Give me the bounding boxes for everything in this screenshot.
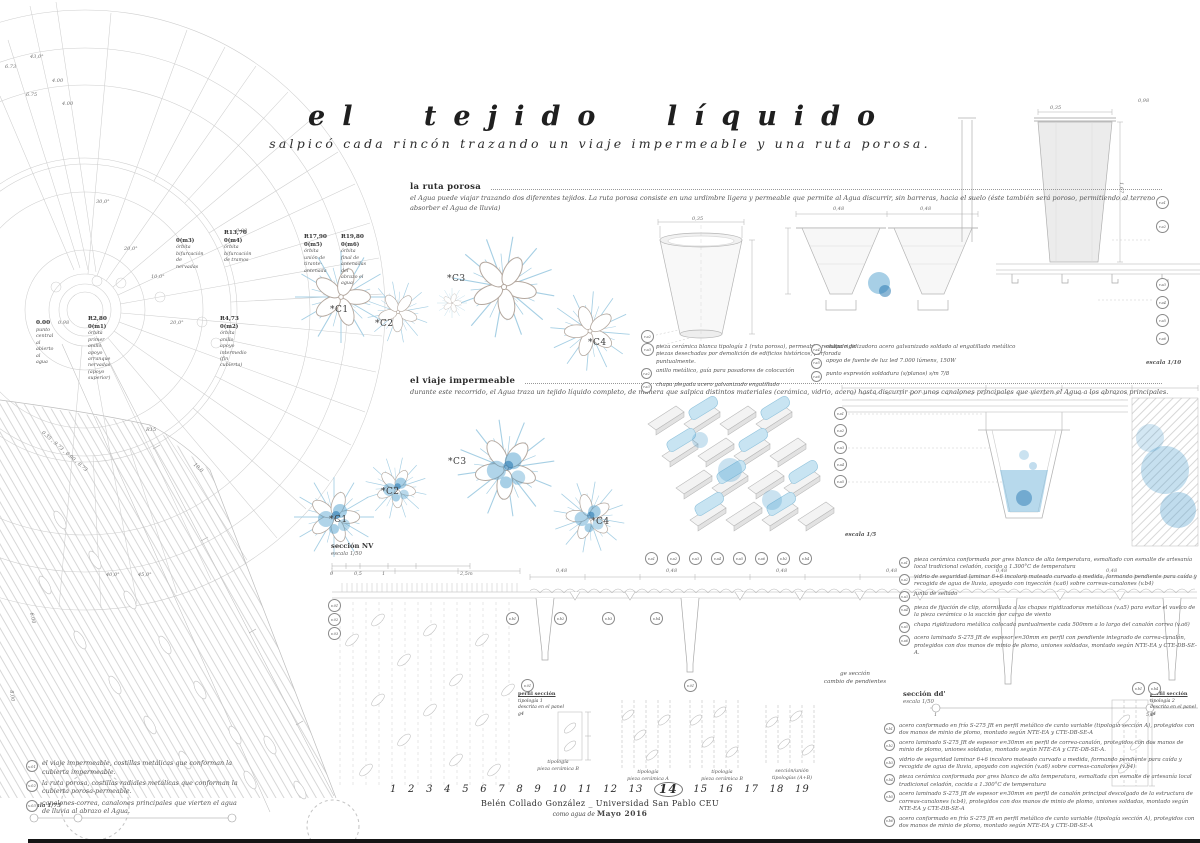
typology-line2: pieza cerámica B — [537, 767, 579, 772]
panel-number: 6 — [480, 784, 487, 795]
page-subtitle: salpicó cada rincón trazando un viaje im… — [250, 136, 950, 151]
legend-item-text: pieza de fijación de clip, atornillada a… — [914, 605, 1199, 620]
presentation-sheet: el tejido líquido salpicó cada rincón tr… — [0, 0, 1200, 843]
dimension-label: 9.00 — [236, 228, 247, 234]
plan-orbit-label: R13,70 0(m4) órbita bifurcación de tramo… — [224, 230, 252, 265]
section-nv-label: sección NV escala 1/50 — [331, 542, 373, 557]
dimension-label: 0,48 — [920, 206, 931, 212]
legend-item: v.a4 pieza de fijación de clip, atornill… — [899, 605, 1199, 620]
panel-number: 9 — [534, 784, 541, 795]
panel-number: 4 — [444, 784, 451, 795]
panel-number: 11 — [578, 784, 593, 795]
panel-number: 12 — [603, 784, 618, 795]
typology-line2: pieza cerámica B — [701, 777, 743, 782]
gutter-vessels-detail — [785, 211, 978, 310]
gutter-funnel-section — [842, 385, 1198, 546]
legend-item-text: acero conformado en frío S-275 JR en per… — [899, 816, 1196, 831]
legend-item: r.a5 apoyo de fuente de luz led 7.000 lú… — [811, 358, 1061, 369]
dimension-label: 0,35 — [692, 216, 703, 222]
legend-item-text: vidrio de seguridad laminar 6+6 incoloro… — [899, 757, 1196, 772]
section-dd-title: sección dd' — [903, 690, 945, 698]
legend-item: v.01 el viaje impermeable, costillas met… — [26, 759, 241, 776]
legend-vb: v.b1 acero conformado en frío S-275 JR e… — [884, 723, 1196, 833]
perfil2-line3: descrita en el panel g4 — [1150, 705, 1196, 719]
orbit-code: 0(m2) — [220, 324, 247, 331]
legend-code-circle: v.a1 — [899, 557, 910, 568]
orbit-radius: R2,80 — [88, 316, 110, 324]
code-marker-circle: v.03 — [328, 627, 341, 640]
panel-number: 10 — [552, 784, 567, 795]
legend-item: v.b4 pieza cerámica conformada por gres … — [884, 774, 1196, 789]
orbit-desc-1: órbita primer anillo apoyo — [88, 331, 110, 357]
legend-item-text: acero conformado en frío S-275 JR en per… — [899, 723, 1196, 738]
panel-number: 5 — [462, 784, 469, 795]
legend-item-text: junta de sellado — [914, 591, 957, 598]
section-dd-label: sección dd' escala 1/50 — [903, 690, 945, 705]
legend-code-circle: v.a5 — [899, 622, 910, 633]
panel-number: 15 — [693, 784, 708, 795]
dimension-label: 45,0° — [138, 572, 152, 578]
scale-note-1-10: escala 1/10 — [1146, 360, 1181, 366]
code-marker-circle: v.a4 — [834, 458, 847, 471]
code-marker-circle: v.a3 — [834, 441, 847, 454]
panel-number: 16 — [719, 784, 734, 795]
dimension-label: 0 — [330, 571, 333, 577]
panel-number: 19 — [795, 784, 810, 795]
dimension-label: 6.73 — [5, 64, 16, 70]
code-marker-circle: v.b4 — [1148, 682, 1161, 695]
legend-item: v.b1 acero conformado en frío S-275 JR e… — [884, 723, 1196, 738]
legend-code-circle: v.01 — [26, 760, 38, 772]
legend-item: v.a3 junta de sellado — [899, 591, 1199, 602]
legend-code-circle: r.a4 — [811, 344, 822, 355]
title-block: el tejido líquido salpicó cada rincón tr… — [250, 101, 950, 151]
flower-piece-label: *C4 — [588, 338, 607, 348]
legend-code-circle: v.b5 — [884, 791, 895, 802]
plan-orbit-label: 0.00 punto central al abierto al agua — [36, 320, 53, 367]
code-marker-circle: v.b2 — [777, 552, 790, 565]
legend-item-text: la ruta porosa, costillas radiales metál… — [42, 779, 241, 796]
orbit-radius: R17,90 — [304, 234, 327, 242]
legend-code-circle: v.b6 — [884, 816, 895, 827]
orbit-radius: R4,73 — [220, 316, 247, 324]
code-marker-circle: r.a6 — [1156, 332, 1169, 345]
legend-item-text: vidrio de seguridad laminar 6+6 incoloro… — [914, 574, 1199, 589]
panel-number: 2 — [408, 784, 415, 795]
perfil1-line3: descrita en el panel g4 — [518, 705, 570, 719]
typology-line1: tipología — [711, 770, 732, 775]
orbit-desc-2: abierto al agua — [36, 347, 53, 366]
typology-line1: tipología — [547, 760, 568, 765]
legend-item-text: chapa rigidizadora metálica colocada pun… — [914, 622, 1190, 629]
legend-code-circle: v.a4 — [899, 605, 910, 616]
orbit-radius: 0.00 — [36, 320, 53, 328]
dimension-label: 0,48 — [996, 568, 1007, 574]
section-heading-text: el viaje impermeable — [410, 376, 515, 386]
legend-code-circle: r.a2 — [641, 368, 652, 379]
legend-va: v.a1 pieza cerámica conformada por gres … — [899, 557, 1199, 660]
legend-item-text: el viaje impermeable, costillas metálica… — [42, 759, 241, 776]
code-marker-circle: r.a2 — [641, 330, 654, 343]
code-marker-circle: v.b1 — [506, 612, 519, 625]
legend-code-circle: r.a5 — [811, 358, 822, 369]
plan-orbit-label: R2,80 0(m1) órbita primer anillo apoyo a… — [88, 316, 110, 383]
ge-line2: cambio de pendientes — [824, 679, 886, 685]
panel-number: 7 — [498, 784, 505, 795]
code-marker-circle: v.a6 — [755, 552, 768, 565]
orbit-desc-2: de tramos — [224, 258, 252, 264]
legend-item-text: acero laminado S-275 JR de espesor e≈30m… — [899, 791, 1196, 813]
dimension-label: 1,67 — [1118, 182, 1124, 193]
code-marker-circle: v.01 — [328, 599, 341, 612]
legend-item-text: chapa rigidizadora acero galvanizado sol… — [826, 344, 1015, 351]
code-marker-circle: v.b4 — [799, 552, 812, 565]
flower-piece-label: *C4 — [591, 517, 610, 527]
legend-code-circle: v.a3 — [899, 591, 910, 602]
dimension-label: 6.75 — [26, 92, 37, 98]
code-marker-circle: v.a2 — [667, 552, 680, 565]
section-nv-title: sección NV — [331, 542, 373, 550]
orbit-desc-2: intermedio (fin cubierta) — [220, 351, 247, 370]
legend-code-circle: v.b3 — [884, 757, 895, 768]
legend-item-text: acero laminado S-275 JR de espesor e≈30m… — [914, 635, 1199, 657]
panel-number: 3 — [426, 784, 433, 795]
dimension-label: 4.00 — [52, 78, 63, 84]
section-heading-ruta-porosa: la ruta porosa — [410, 182, 1162, 192]
tile-array-axonometric — [648, 396, 834, 531]
dimension-label: R15 — [146, 427, 156, 433]
panel-number: 17 — [744, 784, 759, 795]
legend-item-text: chapa plegada acero galvanizado engatill… — [656, 382, 779, 389]
flower-piece-label: *C2 — [375, 319, 394, 329]
legend-code-circle: v.03 — [26, 800, 38, 812]
page-title: el tejido líquido — [250, 101, 950, 132]
code-marker-circle: v.b1 — [1132, 682, 1145, 695]
legend-item: v.03 canalones-correa, canalones princip… — [26, 799, 241, 816]
legend-item-text: pieza cerámica conformada por gres blanc… — [899, 774, 1196, 789]
dimension-label: 0,35 — [1050, 105, 1061, 111]
orbit-radius: R19,80 — [341, 234, 366, 242]
orbit-code: 0(m5) — [304, 242, 327, 249]
legend-item: r.a4 chapa rigidizadora acero galvanizad… — [811, 344, 1061, 355]
dimension-label: 2,5m — [460, 571, 473, 577]
typology-line2: tipologías (A+B) — [772, 776, 812, 781]
legend-ruta-right: r.a4 chapa rigidizadora acero galvanizad… — [811, 344, 1061, 385]
legend-code-circle: v.a2 — [899, 574, 910, 585]
legend-code-circle: r.a3 — [641, 382, 652, 393]
code-marker-circle: v.a3 — [689, 552, 702, 565]
dimension-label: 5,0 — [1146, 712, 1154, 718]
legend-item: v.a6 acero laminado S-275 JR de espesor … — [899, 635, 1199, 657]
code-marker-circle: r.a3 — [641, 343, 654, 356]
legend-item: v.a5 chapa rigidizadora metálica colocad… — [899, 622, 1199, 633]
dimension-label: 0,48 — [833, 206, 844, 212]
dimension-label: 43,0° — [30, 54, 44, 60]
orbit-desc-1: órbita bifurcación — [224, 245, 252, 258]
orbit-code: 0(m1) — [88, 324, 110, 331]
code-marker-circle: r.a3 — [1156, 278, 1169, 291]
panel-number: 1 — [390, 784, 397, 795]
dimension-label: 30,0° — [96, 199, 110, 205]
perfil-label-1: perfil sección tipología 1 descrita en e… — [518, 691, 570, 719]
code-marker-circle: r.a1 — [1156, 196, 1169, 209]
perfil-label-2: perfil sección tipología 2 descrita en e… — [1150, 691, 1196, 719]
plan-orbit-label: R19,80 0(m6) órbita final de antenadas d… — [341, 234, 366, 288]
code-marker-circle: v.a5 — [834, 475, 847, 488]
orbit-desc-1: órbita bifurcación — [176, 245, 204, 258]
dimension-label: 0,5 — [354, 571, 362, 577]
dimension-label: 0,48 — [1106, 568, 1117, 574]
code-marker-circle: v.01 — [521, 679, 534, 692]
code-marker-circle: v.a2 — [834, 424, 847, 437]
legend-code-circle: v.a6 — [899, 635, 910, 646]
legend-code-circle: v.02 — [26, 780, 38, 792]
plan-orbit-label: 0(m3) órbita bifurcación de nervadas — [176, 238, 204, 271]
code-marker-circle: r.a5 — [1156, 314, 1169, 327]
orbit-desc-1: órbita anillo apoyo — [220, 331, 247, 350]
legend-item: v.02 la ruta porosa, costillas radiales … — [26, 779, 241, 796]
code-marker-circle: r.a4 — [1156, 296, 1169, 309]
typology-label: sección/unión tipologías (A+B) — [762, 769, 822, 782]
dimension-label: 0,48 — [666, 568, 677, 574]
dimension-label: 20,0° — [124, 246, 138, 252]
panel-number: 13 — [629, 784, 644, 795]
flower-piece-label: *C2 — [381, 487, 400, 497]
code-marker-circle: v.a4 — [711, 552, 724, 565]
panel-number: 14 — [654, 782, 683, 797]
panel-number-row: 1 2 3 4 5 6 7 8 9 10 11 12 13 14 15 — [390, 782, 810, 797]
panel-number: 8 — [516, 784, 523, 795]
typology-line1: sección/unión — [775, 769, 809, 774]
code-marker-circle: v.b2 — [554, 612, 567, 625]
perfil1-line1: perfil sección — [518, 691, 570, 699]
dimension-label: 8.00 — [8, 690, 15, 702]
legend-code-circle: v.b4 — [884, 774, 895, 785]
dimension-label: 1 — [382, 571, 385, 577]
orbit-desc-2: arranque nervadas (apoyo superior) — [88, 357, 110, 383]
typology-line2: pieza cerámica A — [627, 777, 669, 782]
plan-orbit-label: R4,73 0(m2) órbita anillo apoyo intermed… — [220, 316, 247, 370]
dimension-label: 0,98 — [1138, 98, 1149, 104]
ge-section-label: ge sección cambio de pendientes — [810, 670, 900, 687]
date-value: Mayo 2016 — [597, 809, 648, 818]
legend-item-text: anillo metálico, guía para pasadores de … — [656, 368, 794, 375]
legend-item-text: pieza cerámica conformada por gres blanc… — [914, 557, 1199, 572]
dotted-leader — [491, 185, 1162, 190]
code-marker-circle: v.02 — [328, 613, 341, 626]
legend-item: v.a1 pieza cerámica conformada por gres … — [899, 557, 1199, 572]
legend-item: v.b3 vidrio de seguridad laminar 6+6 inc… — [884, 757, 1196, 772]
legend-item: v.b5 acero laminado S-275 JR de espesor … — [884, 791, 1196, 813]
dimension-label: 0,48 — [886, 568, 897, 574]
legend-item-text: canalones-correa, canalones principales … — [42, 799, 241, 816]
date-prefix: como agua de — [553, 811, 595, 818]
footer-bar — [28, 839, 1200, 843]
orbit-code: 0(m6) — [341, 242, 366, 249]
typology-label: tipología pieza cerámica B — [528, 760, 588, 773]
legend-item: v.b6 acero conformado en frío S-275 JR e… — [884, 816, 1196, 831]
legend-code-circle: r.a6 — [811, 371, 822, 382]
dimension-label: 0,48 — [776, 568, 787, 574]
orbit-desc-1: órbita final de antenadas — [341, 249, 366, 268]
legend-item-text: acero laminado S-275 JR de espesor e≈30m… — [899, 740, 1196, 755]
dimension-label: 0,48 — [556, 568, 567, 574]
code-marker-circle: v.a1 — [645, 552, 658, 565]
flower-piece-label: *C1 — [329, 515, 348, 525]
code-marker-circle: v.01 — [684, 679, 697, 692]
dimension-label: 0.98 — [58, 320, 69, 326]
flower-piece-label: *C3 — [447, 274, 466, 284]
flower-piece-label: *C3 — [448, 457, 467, 467]
code-marker-circle: v.b4 — [650, 612, 663, 625]
orbit-desc-1: órbita unión de — [304, 249, 327, 262]
legend-item: r.a6 punto expresión soldadura (s/planos… — [811, 371, 1061, 382]
legend-v0: v.01 el viaje impermeable, costillas met… — [26, 759, 241, 818]
ceramic-cup-detail — [652, 219, 755, 348]
dimension-label: 20,0° — [170, 320, 184, 326]
orbit-desc-2: tirante-antenada — [304, 262, 327, 275]
section-dd-scale: escala 1/50 — [903, 699, 945, 705]
code-marker-circle: v.b3 — [602, 612, 615, 625]
plan-orbit-label: R17,90 0(m5) órbita unión de tirante-ant… — [304, 234, 327, 275]
orbit-desc-2: de nervadas — [176, 258, 204, 271]
typology-line1: tipología — [637, 770, 658, 775]
legend-code-circle: v.b2 — [884, 740, 895, 751]
flower-piece-label: *C1 — [330, 305, 349, 315]
code-marker-circle: r.a2 — [1156, 220, 1169, 233]
dimension-label: 1 — [934, 712, 937, 718]
section-nv-scale: escala 1/50 — [331, 551, 373, 557]
dimension-label: 10,0° — [151, 274, 165, 280]
section-heading-text: la ruta porosa — [410, 182, 481, 192]
legend-item: v.a2 vidrio de seguridad laminar 6+6 inc… — [899, 574, 1199, 589]
legend-code-circle: v.b1 — [884, 723, 895, 734]
orbit-desc-1: punto central al — [36, 328, 53, 347]
dimension-label: 40,0° — [106, 572, 120, 578]
author-credit: Belén Collado González _ Universidad San… — [400, 799, 800, 808]
legend-item-text: apoyo de fuente de luz led 7.000 lúmens,… — [826, 358, 956, 365]
code-marker-circle: v.a5 — [733, 552, 746, 565]
ge-line1: ge sección — [840, 671, 870, 677]
orbit-code: 0(m4) — [224, 238, 252, 245]
panel-number: 18 — [770, 784, 785, 795]
code-marker-circle: v.a1 — [834, 407, 847, 420]
dimension-label: 4.00 — [62, 101, 73, 107]
orbit-desc-2: del abrazo el agua — [341, 269, 366, 288]
legend-item: v.b2 acero laminado S-275 JR de espesor … — [884, 740, 1196, 755]
section-body-ruta-porosa: el Agua puede viajar trazando dos difere… — [410, 194, 1178, 213]
date-line: como agua de Mayo 2016 — [400, 809, 800, 818]
legend-item-text: punto expresión soldadura (s/planos) s/m… — [826, 371, 949, 378]
scale-note-1-5: escala 1/5 — [845, 532, 876, 538]
ribbed-elevation-drawing — [340, 602, 516, 788]
